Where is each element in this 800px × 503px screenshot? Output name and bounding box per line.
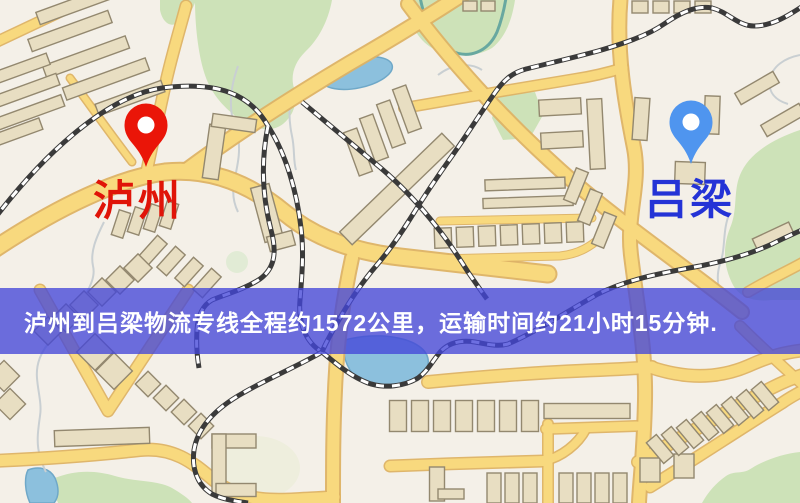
map-canvas[interactable]: 泸州 吕梁 (0, 0, 800, 503)
road (440, 218, 592, 221)
road (546, 426, 637, 429)
road (390, 461, 544, 466)
map-screenshot: 泸州 吕梁 泸州到吕梁物流专线全程约1572公里，运输时间约21小时15分钟. (0, 0, 800, 503)
destination-city-label: 吕梁 (645, 176, 735, 223)
origin-city-label: 泸州 (93, 177, 183, 224)
route-info-banner: 泸州到吕梁物流专线全程约1572公里，运输时间约21小时15分钟. (0, 288, 800, 354)
route-info-text: 泸州到吕梁物流专线全程约1572公里，运输时间约21小时15分钟. (24, 304, 718, 338)
